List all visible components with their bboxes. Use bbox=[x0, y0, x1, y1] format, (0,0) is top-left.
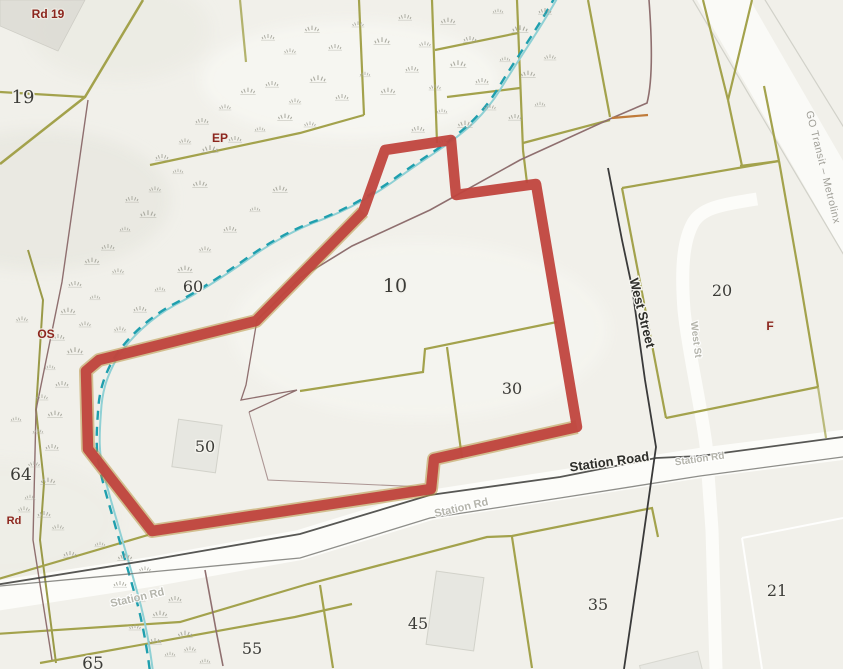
zone-label-rd19: Rd 19 bbox=[32, 7, 65, 21]
parcel-label-55: 55 bbox=[242, 639, 262, 658]
parcel-label-60: 60 bbox=[183, 277, 203, 296]
zone-label-ep: EP bbox=[212, 131, 228, 145]
parcel-label-64: 64 bbox=[10, 465, 32, 485]
parcel-label-65: 65 bbox=[82, 654, 104, 669]
parcel-label-35: 35 bbox=[588, 595, 608, 614]
map-viewport[interactable]: 19 60 10 30 50 64 20 21 35 45 55 65 Rd 1… bbox=[0, 0, 843, 669]
zone-label-rd: Rd bbox=[7, 515, 22, 527]
parcel-label-10: 10 bbox=[383, 275, 407, 297]
zone-label-f: F bbox=[766, 319, 773, 333]
zone-label-os: OS bbox=[37, 327, 54, 341]
basemap: 19 60 10 30 50 64 20 21 35 45 55 65 Rd 1… bbox=[0, 0, 843, 669]
parcel-label-19: 19 bbox=[12, 87, 35, 108]
parcel-label-30: 30 bbox=[502, 379, 522, 398]
parcel-label-50: 50 bbox=[195, 437, 215, 456]
building bbox=[426, 571, 484, 651]
parcel-label-21: 21 bbox=[767, 581, 787, 600]
parcel-label-20: 20 bbox=[712, 281, 732, 300]
parcel-label-45: 45 bbox=[408, 614, 428, 633]
